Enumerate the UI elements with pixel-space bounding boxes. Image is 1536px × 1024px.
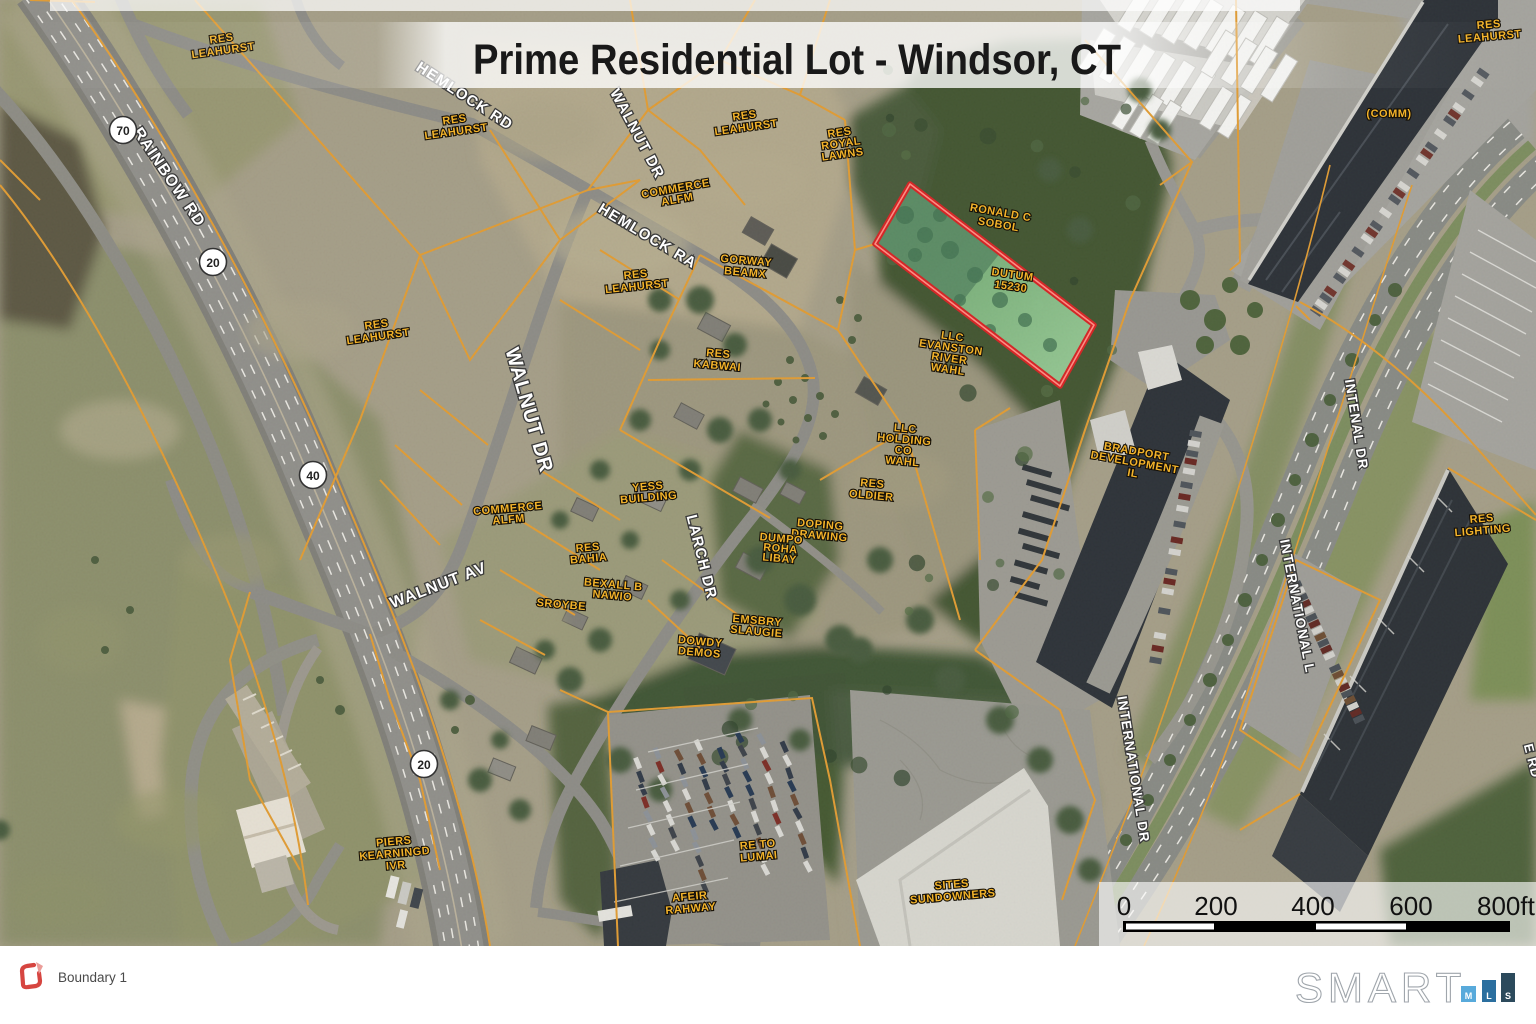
svg-text:200: 200 xyxy=(1194,891,1237,921)
svg-text:Prime Residential Lot - Windso: Prime Residential Lot - Windsor, CT xyxy=(473,36,1121,84)
svg-text:(COMM): (COMM) xyxy=(1366,108,1411,120)
svg-text:70: 70 xyxy=(116,124,130,138)
svg-text:800ft: 800ft xyxy=(1477,891,1536,921)
svg-text:600: 600 xyxy=(1389,891,1432,921)
svg-text:S: S xyxy=(1505,991,1511,1001)
svg-text:0: 0 xyxy=(1117,891,1131,921)
svg-text:M: M xyxy=(1465,991,1473,1001)
svg-text:IVR: IVR xyxy=(385,859,406,873)
svg-text:20: 20 xyxy=(417,758,431,772)
svg-text:20: 20 xyxy=(206,256,220,270)
svg-text:40: 40 xyxy=(306,469,320,483)
svg-text:IL: IL xyxy=(1126,467,1139,481)
svg-text:Boundary 1: Boundary 1 xyxy=(58,970,127,985)
svg-text:SMART: SMART xyxy=(1295,964,1466,1011)
svg-text:L: L xyxy=(1486,991,1492,1001)
svg-text:400: 400 xyxy=(1291,891,1334,921)
